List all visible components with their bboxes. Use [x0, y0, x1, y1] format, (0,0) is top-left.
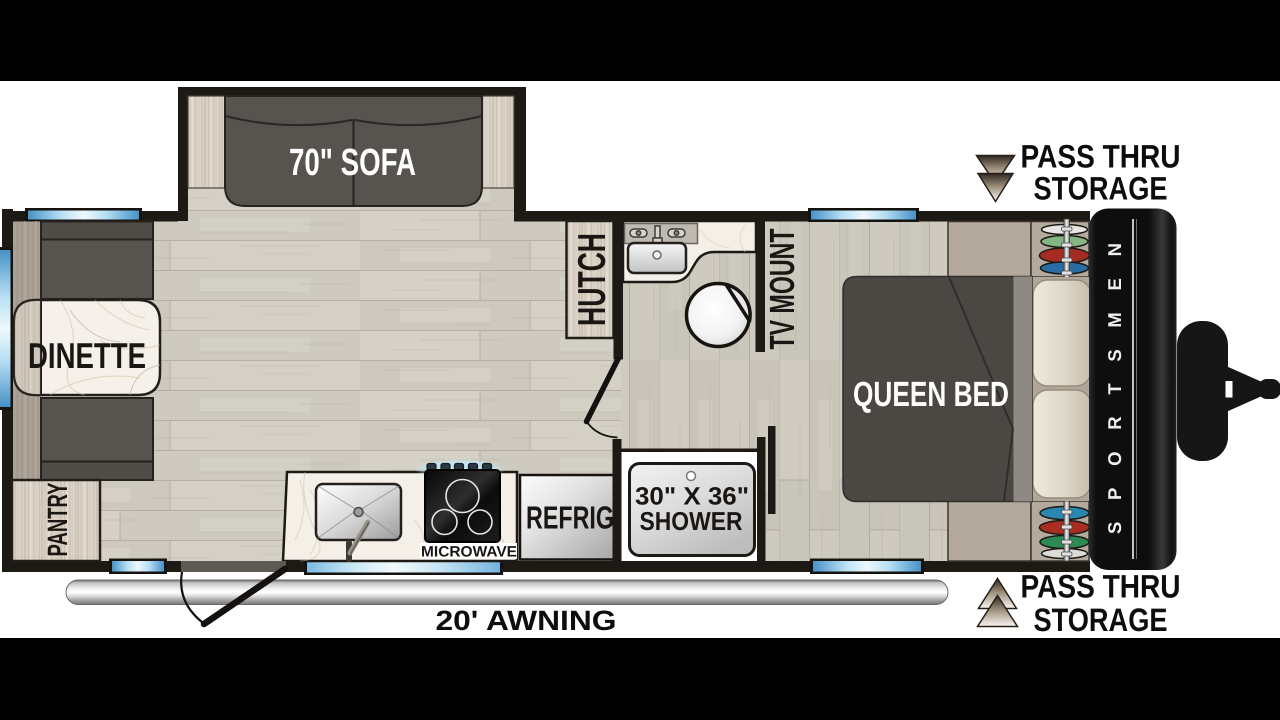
svg-text:HUTCH: HUTCH [571, 233, 614, 326]
svg-text:20' AWNING: 20' AWNING [436, 605, 617, 636]
svg-text:TV MOUNT: TV MOUNT [763, 229, 802, 350]
svg-text:REFRIG: REFRIG [526, 500, 614, 536]
svg-text:STORAGE: STORAGE [1034, 171, 1168, 207]
svg-text:DINETTE: DINETTE [28, 335, 146, 376]
svg-text:PASS THRU: PASS THRU [1021, 569, 1181, 605]
svg-text:QUEEN BED: QUEEN BED [853, 375, 1009, 414]
svg-text:SPORTSMEN: SPORTSMEN [1104, 243, 1125, 534]
svg-text:70" SOFA: 70" SOFA [289, 142, 416, 184]
svg-text:STORAGE: STORAGE [1034, 602, 1168, 638]
svg-text:PANTRY: PANTRY [42, 482, 73, 556]
svg-text:MICROWAVE: MICROWAVE [421, 544, 517, 561]
svg-text:SHOWER: SHOWER [640, 506, 743, 536]
svg-text:PASS THRU: PASS THRU [1021, 139, 1181, 175]
